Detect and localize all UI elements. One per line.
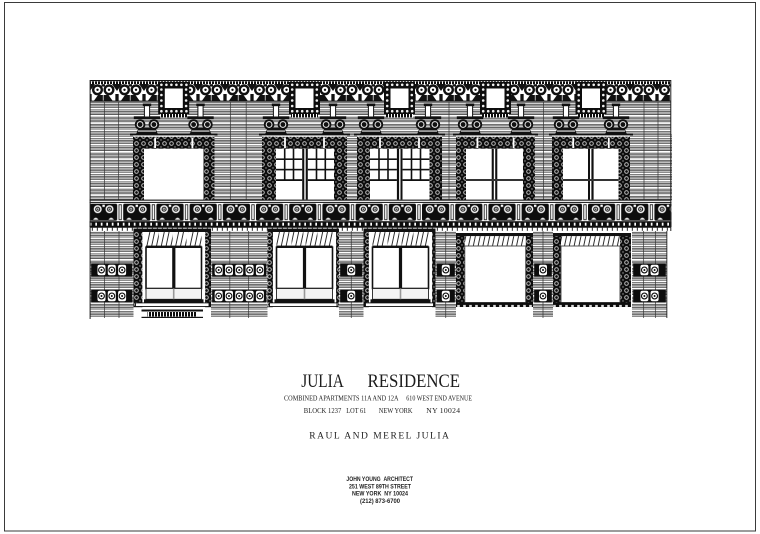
svg-text:COMBINED APARTMENTS 11A AND 12: COMBINED APARTMENTS 11A AND 12A — [284, 394, 399, 403]
svg-text:NEW YORK NY 10024: NEW YORK NY 10024 — [352, 491, 408, 498]
svg-text:JULIA: JULIA — [301, 372, 344, 392]
svg-text:BLOCK 1237: BLOCK 1237 — [304, 406, 342, 415]
svg-text:(212) 873-6700: (212) 873-6700 — [360, 498, 401, 505]
svg-text:RESIDENCE: RESIDENCE — [368, 372, 461, 392]
svg-text:610 WEST END AVENUE: 610 WEST END AVENUE — [406, 394, 472, 403]
svg-text:NY 10024: NY 10024 — [426, 406, 460, 415]
svg-text:251 WEST 89TH STREET: 251 WEST 89TH STREET — [349, 483, 411, 490]
svg-text:NEW YORK: NEW YORK — [379, 406, 413, 415]
svg-text:JOHN YOUNG ARCHITECT: JOHN YOUNG ARCHITECT — [346, 476, 413, 483]
svg-text:LOT 61: LOT 61 — [346, 406, 366, 415]
svg-text:RAUL AND MEREL JULIA: RAUL AND MEREL JULIA — [309, 432, 449, 442]
